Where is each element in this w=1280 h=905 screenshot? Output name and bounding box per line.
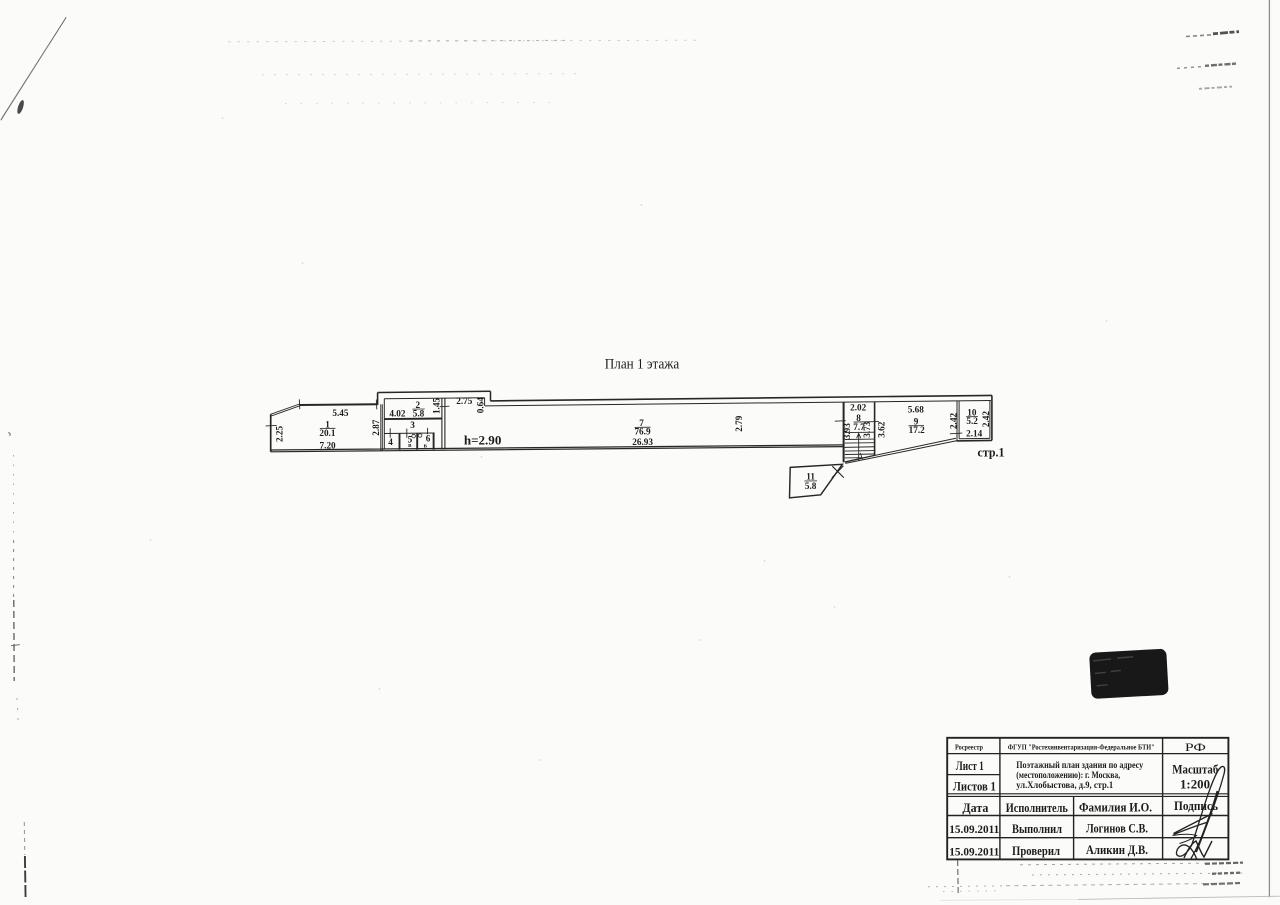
svg-text:11: 11 bbox=[806, 472, 815, 482]
svg-text:2.14: 2.14 bbox=[966, 428, 982, 438]
svg-text:3: 3 bbox=[410, 420, 415, 430]
svg-text:Аликин Д.В.: Аликин Д.В. bbox=[1086, 843, 1148, 857]
svg-text:15.09.2011: 15.09.2011 bbox=[949, 822, 999, 836]
svg-text:76.9: 76.9 bbox=[634, 426, 650, 436]
svg-text:3.62: 3.62 bbox=[877, 421, 887, 437]
svg-text:5.8: 5.8 bbox=[413, 409, 425, 419]
svg-text:Масштаб: Масштаб bbox=[1172, 762, 1218, 776]
svg-text:0.64: 0.64 bbox=[476, 397, 486, 413]
svg-text:5.68: 5.68 bbox=[908, 405, 924, 415]
svg-text:15.09.2011: 15.09.2011 bbox=[949, 844, 999, 858]
svg-text:2.75: 2.75 bbox=[456, 396, 472, 406]
svg-text:5.8: 5.8 bbox=[805, 481, 817, 491]
svg-text:2.25: 2.25 bbox=[274, 426, 284, 442]
svg-text:2.42: 2.42 bbox=[949, 413, 959, 429]
svg-text:4: 4 bbox=[388, 437, 393, 447]
svg-text:1.45: 1.45 bbox=[432, 398, 442, 414]
svg-text:h=2.90: h=2.90 bbox=[464, 434, 502, 448]
svg-text:1:200: 1:200 bbox=[1180, 777, 1210, 791]
svg-text:ул.Хлобыстова, д.9, стр.1: ул.Хлобыстова, д.9, стр.1 bbox=[1016, 780, 1113, 791]
svg-text:3.93: 3.93 bbox=[842, 423, 852, 439]
svg-text:Проверил: Проверил bbox=[1012, 844, 1060, 858]
svg-text:Листов 1: Листов 1 bbox=[953, 780, 996, 794]
svg-text:3.73: 3.73 bbox=[862, 421, 872, 437]
svg-text:Логинов С.В.: Логинов С.В. bbox=[1086, 821, 1148, 835]
svg-text:5.2: 5.2 bbox=[966, 416, 978, 426]
svg-text:2.79: 2.79 bbox=[734, 415, 744, 431]
svg-text:РФ: РФ bbox=[1185, 740, 1206, 754]
svg-text:17.2: 17.2 bbox=[909, 425, 925, 435]
svg-text:26.93: 26.93 bbox=[632, 437, 653, 447]
svg-text:20.1: 20.1 bbox=[319, 428, 335, 438]
svg-text:4.02: 4.02 bbox=[389, 409, 405, 419]
svg-text:Фамилия И.О.: Фамилия И.О. bbox=[1079, 801, 1152, 815]
svg-text:Лист 1: Лист 1 bbox=[956, 759, 984, 773]
svg-text:2.42: 2.42 bbox=[981, 411, 991, 427]
svg-text:ФГУП "Ростехинвентаризация-Фед: ФГУП "Ростехинвентаризация-Федеральное Б… bbox=[1008, 743, 1155, 752]
svg-text:План 1 этажа: План 1 этажа bbox=[605, 356, 680, 372]
svg-text:Исполнитель: Исполнитель bbox=[1006, 801, 1068, 815]
svg-text:Росреестр: Росреестр bbox=[955, 743, 983, 751]
svg-text:Выполнил: Выполнил bbox=[1012, 822, 1062, 836]
svg-text:7.20: 7.20 bbox=[320, 441, 336, 451]
svg-text:2.02: 2.02 bbox=[850, 402, 866, 412]
svg-text:5.45: 5.45 bbox=[332, 408, 348, 418]
svg-text:Дата: Дата bbox=[962, 801, 989, 815]
svg-text:стр.1: стр.1 bbox=[978, 446, 1005, 460]
svg-text:2.87: 2.87 bbox=[371, 419, 381, 435]
